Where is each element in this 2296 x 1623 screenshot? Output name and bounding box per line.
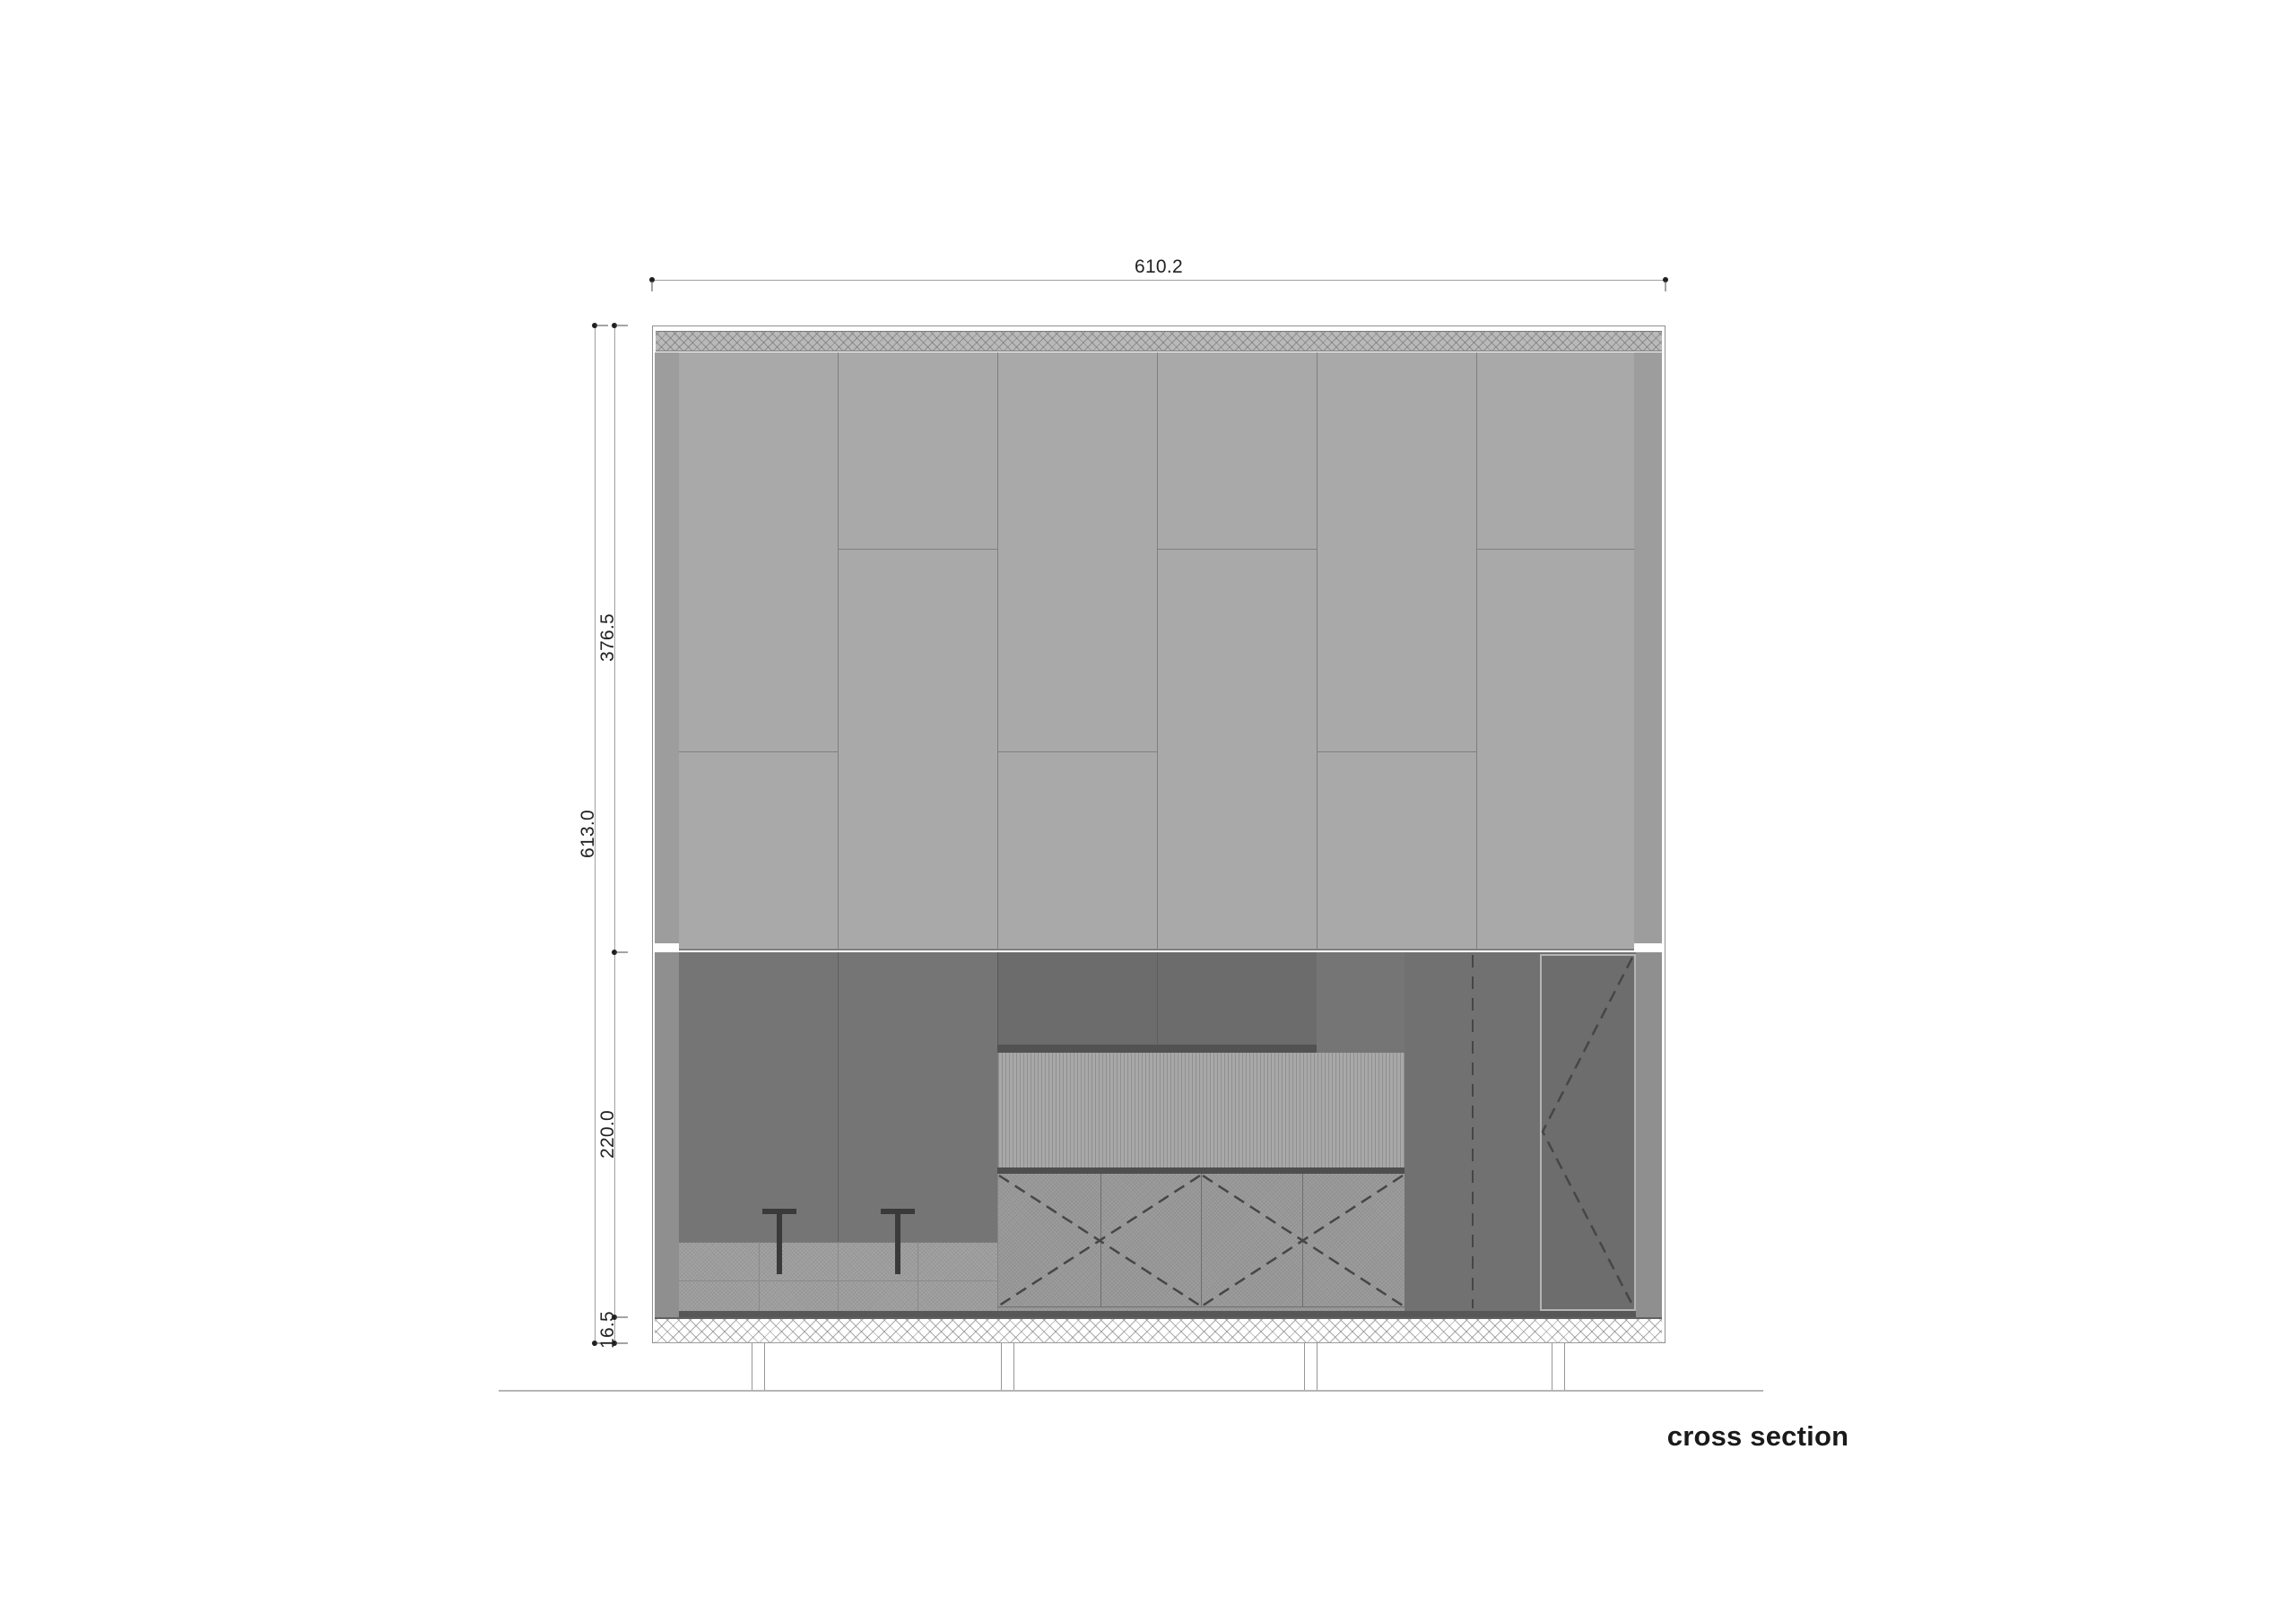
drawing-sheet: 610.2 613.0 376.5 220.0 16.5 bbox=[0, 0, 2296, 1623]
panel-joint bbox=[1317, 352, 1318, 949]
panel-joint bbox=[997, 352, 998, 949]
support-leg bbox=[752, 1343, 765, 1391]
countertop bbox=[997, 1167, 1405, 1174]
dim-extension bbox=[1665, 281, 1666, 291]
dim-line-left-inner bbox=[614, 325, 615, 1343]
wall-joint bbox=[838, 952, 839, 1242]
bench-joint bbox=[759, 1242, 760, 1311]
dim-extension bbox=[596, 325, 608, 326]
bench-joint bbox=[918, 1242, 918, 1311]
door-panel bbox=[1540, 954, 1636, 1311]
panel-joint bbox=[1157, 352, 1158, 949]
upper-cabinet-bottom bbox=[997, 1045, 1317, 1053]
dim-extension bbox=[615, 325, 628, 326]
dim-label-upper-wall: 376.5 bbox=[597, 613, 619, 662]
panel-joint bbox=[679, 751, 838, 752]
cabinet-divider bbox=[1302, 1174, 1303, 1307]
panel-joint bbox=[838, 352, 839, 949]
ground-line bbox=[499, 1390, 1763, 1392]
support-leg bbox=[1001, 1343, 1014, 1391]
dim-extension bbox=[615, 952, 628, 953]
roof-slab bbox=[656, 331, 1662, 352]
section-title: cross section bbox=[1667, 1420, 1848, 1453]
floor-slab bbox=[655, 1317, 1662, 1343]
panel-joint bbox=[997, 751, 1157, 752]
dim-label-interior: 220.0 bbox=[597, 1110, 619, 1159]
panel-joint bbox=[1317, 751, 1476, 752]
cut-wall-left bbox=[655, 952, 679, 1317]
backsplash bbox=[997, 1053, 1405, 1167]
support-leg bbox=[1552, 1343, 1565, 1391]
dim-line-top bbox=[652, 280, 1665, 281]
panel-joint bbox=[1476, 549, 1634, 550]
dim-label-overall-width: 610.2 bbox=[1135, 256, 1183, 278]
support-leg bbox=[1304, 1343, 1318, 1391]
dim-label-overall-height: 613.0 bbox=[578, 810, 599, 858]
cut-wall-right bbox=[1636, 952, 1662, 1317]
cabinet-divider bbox=[1201, 1174, 1202, 1307]
cabinet-bottom-line bbox=[997, 1306, 1405, 1307]
bar-stool-leg bbox=[895, 1214, 900, 1274]
bar-stool-leg bbox=[777, 1214, 782, 1274]
cabinet-divider bbox=[1100, 1174, 1101, 1307]
bench-kick-line bbox=[679, 1280, 997, 1281]
panel-joint bbox=[1476, 352, 1477, 949]
facade-edge-left bbox=[655, 352, 679, 943]
upper-cabinet-joint bbox=[1157, 952, 1158, 1045]
dim-label-floor: 16.5 bbox=[597, 1311, 619, 1349]
base-strip bbox=[679, 1311, 1636, 1317]
bench-joint bbox=[838, 1242, 839, 1311]
panel-joint bbox=[1157, 549, 1317, 550]
facade-edge-right bbox=[1634, 352, 1662, 943]
dim-extension bbox=[652, 281, 653, 291]
panel-joint bbox=[838, 549, 997, 550]
